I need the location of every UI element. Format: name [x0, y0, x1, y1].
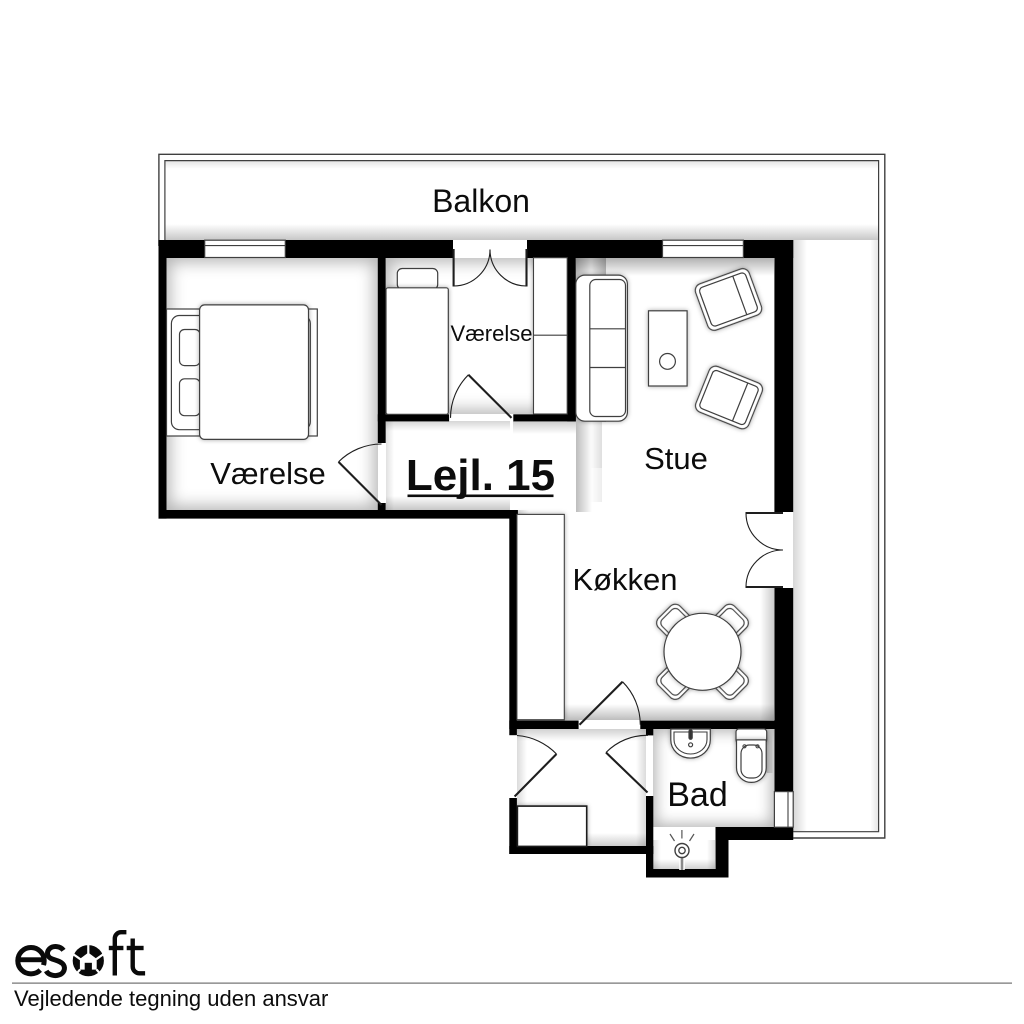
svg-text:Værelse: Værelse — [451, 321, 533, 346]
svg-text:Bad: Bad — [667, 776, 728, 814]
svg-text:Køkken: Køkken — [572, 562, 677, 597]
svg-text:Balkon: Balkon — [432, 183, 530, 219]
svg-text:Stue: Stue — [644, 441, 708, 476]
svg-text:Værelse: Værelse — [210, 456, 325, 491]
svg-text:Lejl. 15: Lejl. 15 — [406, 451, 555, 500]
svg-text:Vejledende tegning uden ansvar: Vejledende tegning uden ansvar — [14, 986, 328, 1011]
